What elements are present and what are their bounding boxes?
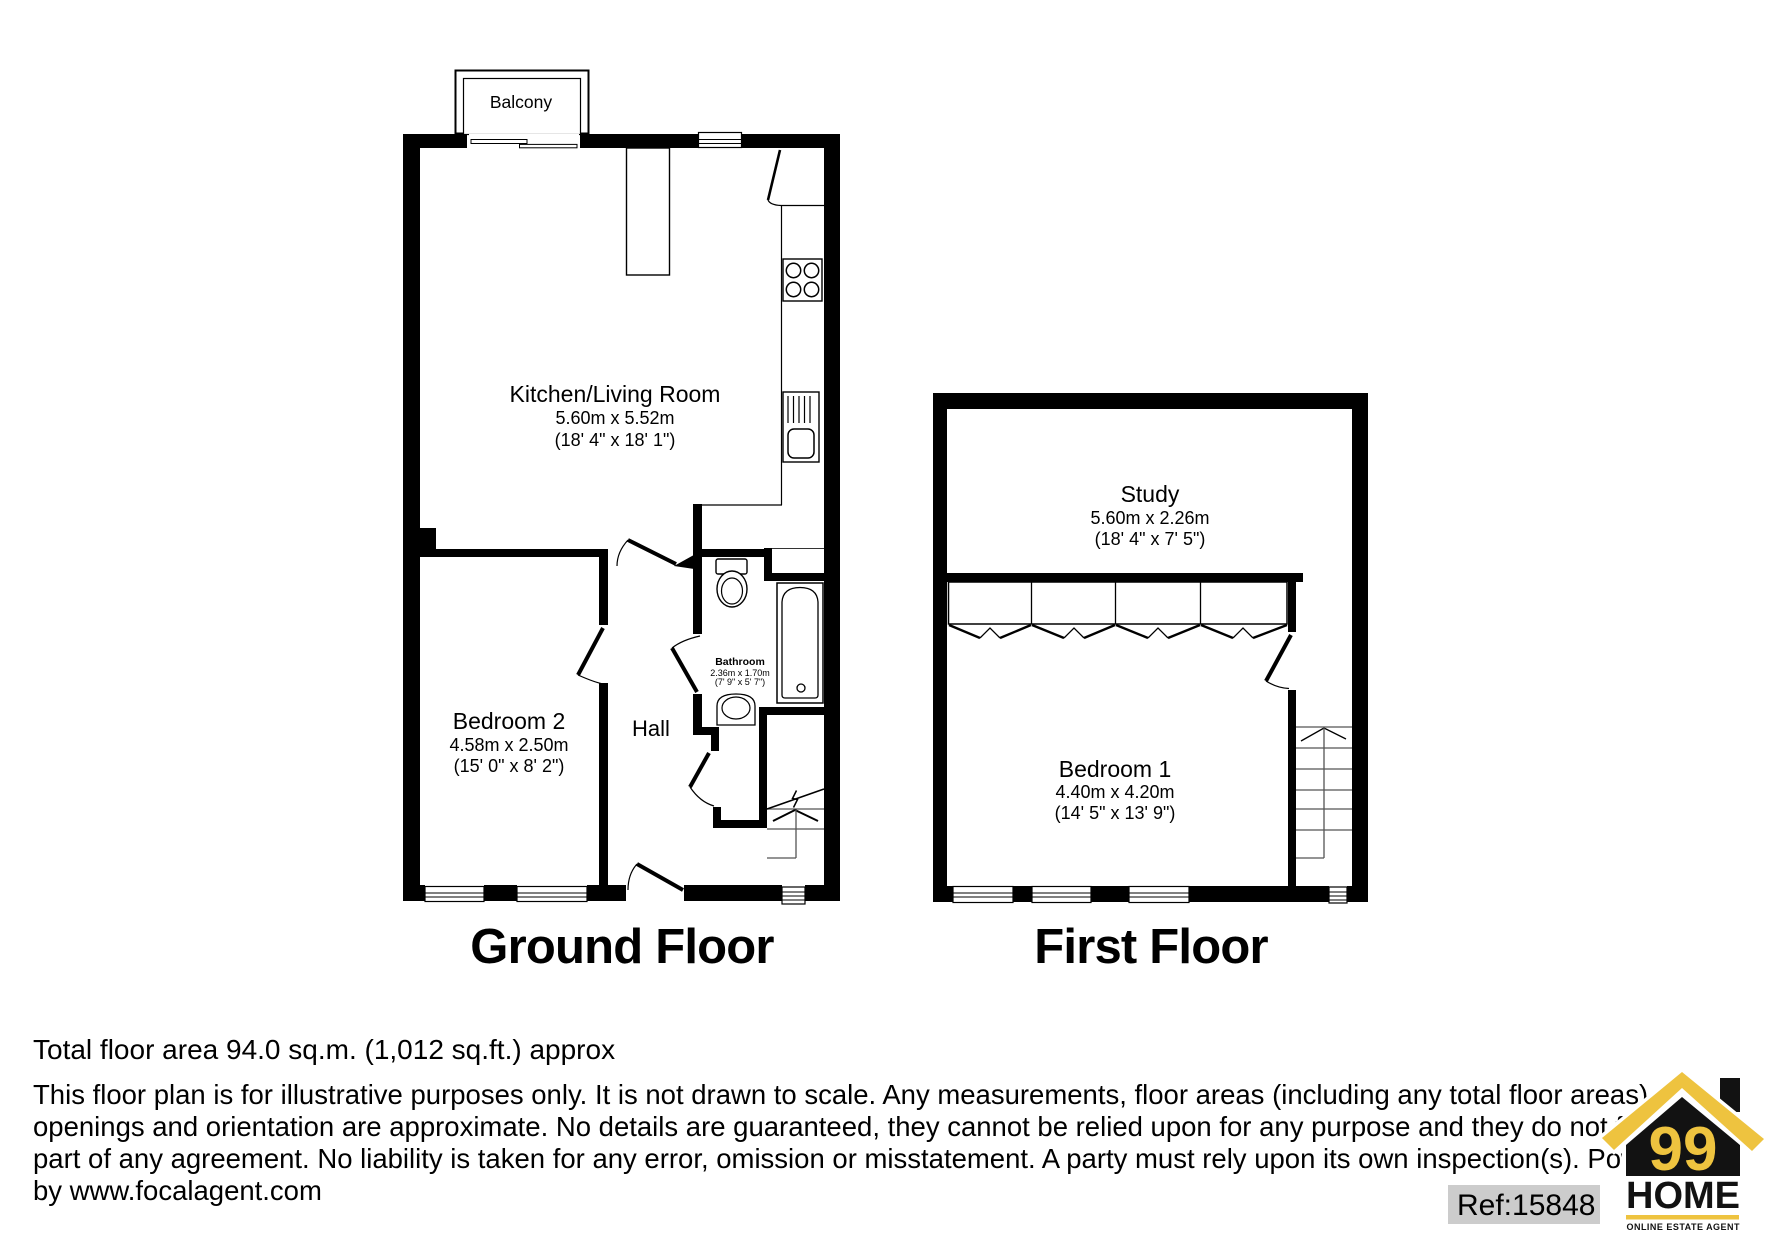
svg-text:(7' 9" x 5' 7"): (7' 9" x 5' 7")	[715, 677, 765, 687]
svg-text:ONLINE ESTATE AGENT: ONLINE ESTATE AGENT	[1627, 1222, 1741, 1232]
svg-text:openings and orientation are a: openings and orientation are approximate…	[33, 1111, 1670, 1142]
svg-text:(14' 5" x 13' 9"): (14' 5" x 13' 9")	[1055, 803, 1176, 823]
svg-text:5.60m x 5.52m: 5.60m x 5.52m	[555, 408, 674, 428]
svg-text:Hall: Hall	[632, 716, 670, 741]
svg-text:Bathroom: Bathroom	[715, 656, 765, 668]
svg-text:Ground Floor: Ground Floor	[470, 920, 774, 974]
svg-text:First Floor: First Floor	[1034, 920, 1268, 974]
svg-text:5.60m x 2.26m: 5.60m x 2.26m	[1090, 508, 1209, 528]
svg-text:(15' 0" x 8' 2"): (15' 0" x 8' 2")	[454, 756, 565, 776]
svg-text:by www.focalagent.com: by www.focalagent.com	[33, 1175, 322, 1206]
svg-text:(18' 4" x 7' 5"): (18' 4" x 7' 5")	[1095, 529, 1206, 549]
svg-text:Balcony: Balcony	[490, 92, 553, 112]
svg-text:Bedroom 1: Bedroom 1	[1059, 756, 1172, 782]
svg-text:HOME: HOME	[1626, 1175, 1740, 1217]
svg-text:(18' 4" x 18' 1"): (18' 4" x 18' 1")	[555, 430, 676, 450]
svg-text:99: 99	[1649, 1115, 1718, 1184]
svg-text:4.40m x 4.20m: 4.40m x 4.20m	[1055, 782, 1174, 802]
svg-text:This floor plan is for illustr: This floor plan is for illustrative purp…	[33, 1079, 1656, 1110]
svg-text:Bedroom 2: Bedroom 2	[453, 708, 566, 734]
svg-text:4.58m x 2.50m: 4.58m x 2.50m	[449, 735, 568, 755]
svg-text:part of any agreement. No liab: part of any agreement. No liability is t…	[33, 1143, 1696, 1174]
svg-text:Total floor area 94.0 sq.m. (1: Total floor area 94.0 sq.m. (1,012 sq.ft…	[33, 1034, 615, 1065]
svg-text:Ref:15848: Ref:15848	[1457, 1189, 1595, 1222]
svg-text:Kitchen/Living Room: Kitchen/Living Room	[510, 381, 721, 407]
svg-text:Study: Study	[1121, 481, 1180, 507]
